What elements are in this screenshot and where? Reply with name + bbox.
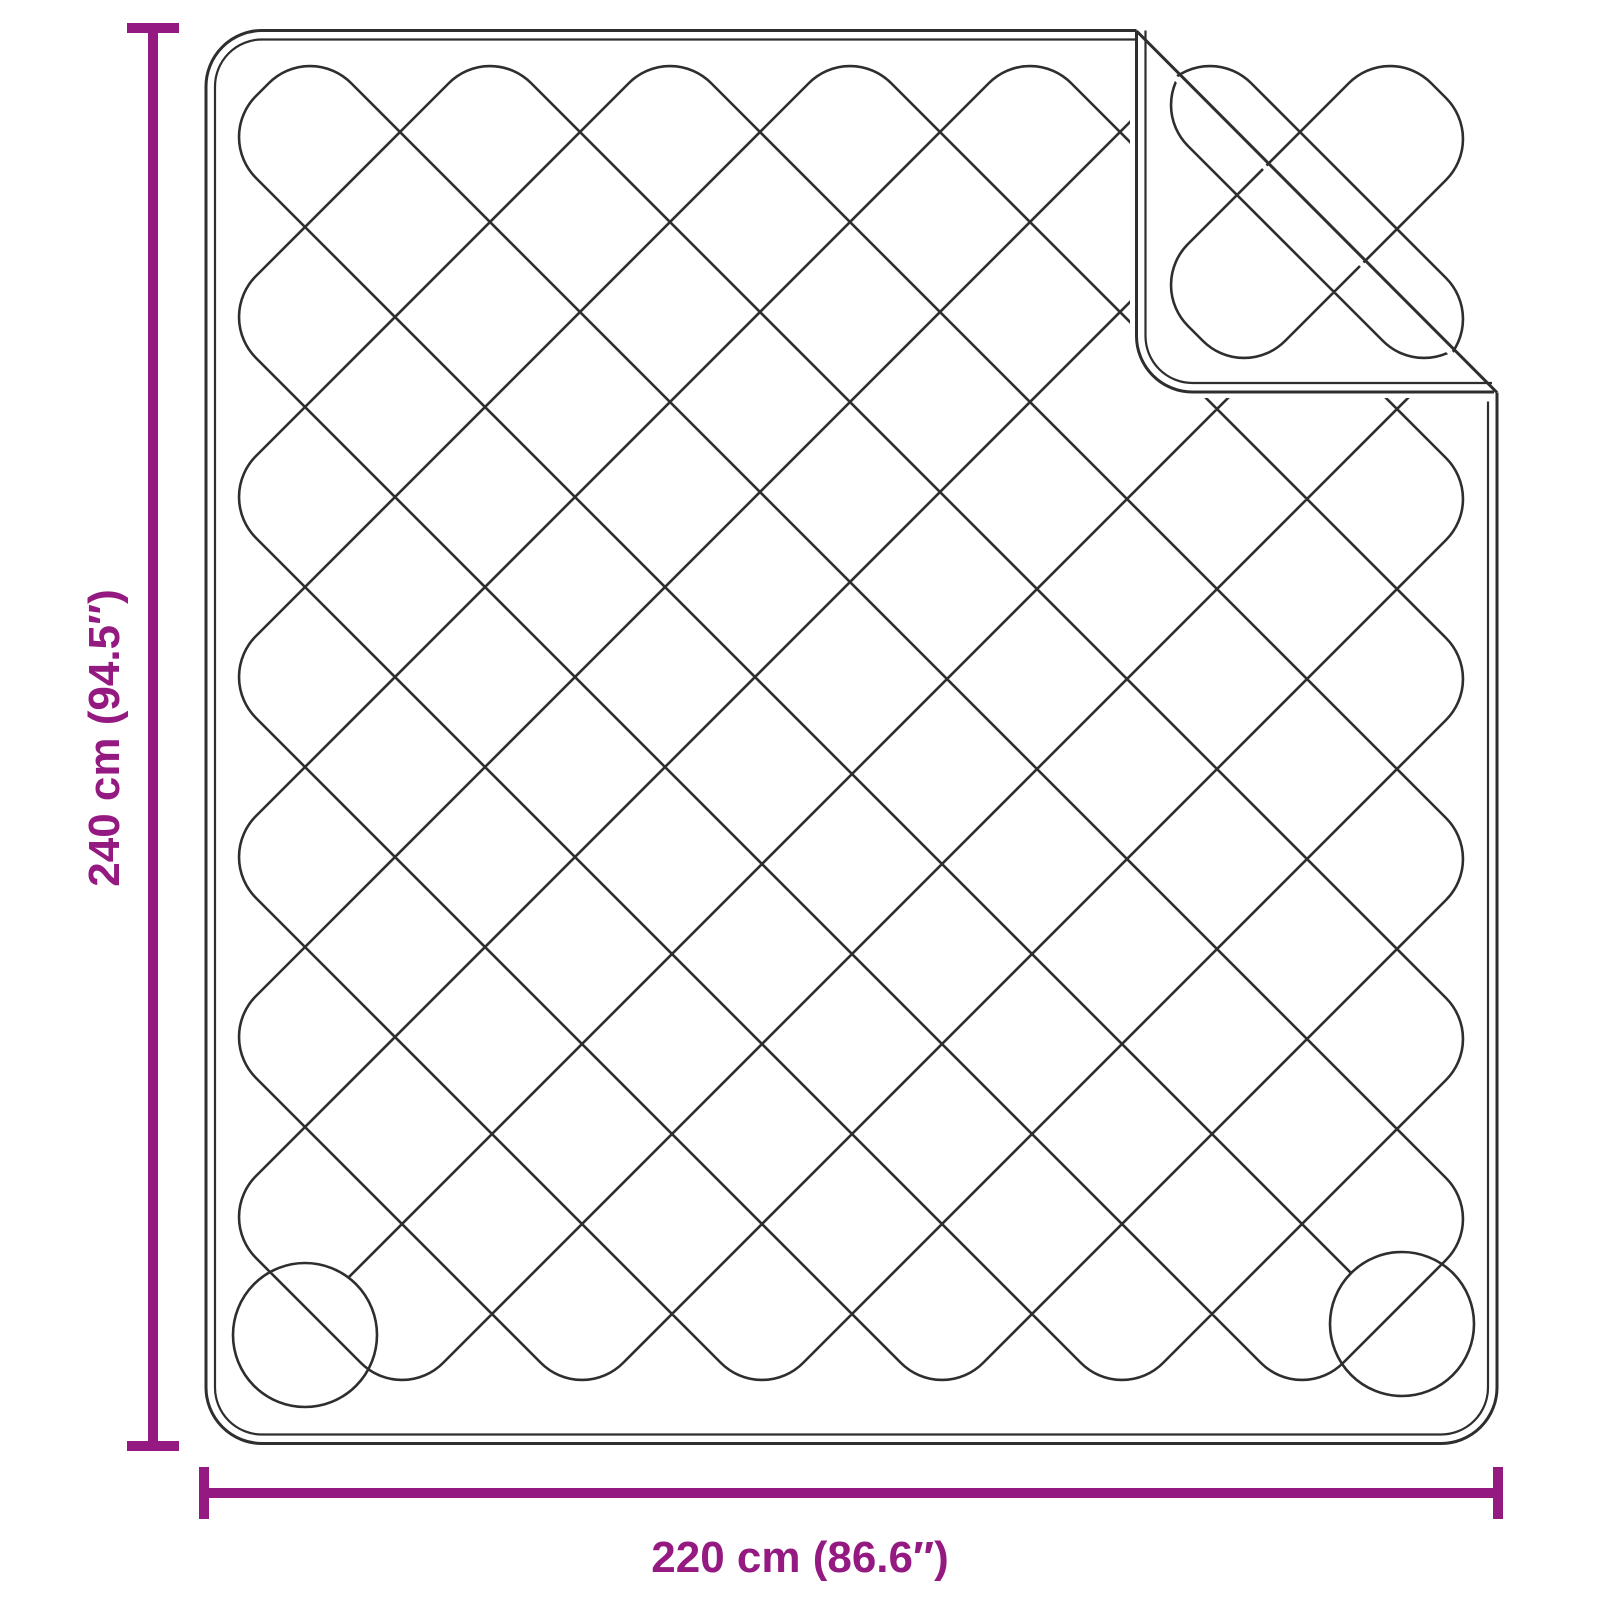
- blanket-outline-outer: [206, 31, 1497, 1444]
- corner-stitch-loop-bottom-left: [233, 1263, 377, 1407]
- quilt-stitch-path: [239, 66, 1463, 1380]
- blanket-border: [206, 31, 1497, 1444]
- blanket-outline-inner: [215, 40, 1488, 1435]
- width-dimension-label: 220 cm (86.6″): [651, 1533, 948, 1582]
- height-dimension-label: 240 cm (94.5″): [80, 589, 129, 886]
- diagram-canvas: 240 cm (94.5″) 220 cm (86.6″): [0, 0, 1600, 1600]
- blanket-dimension-diagram: 240 cm (94.5″) 220 cm (86.6″): [0, 0, 1600, 1600]
- folded-corner-quilting: [1171, 0, 1600, 358]
- folded-corner: [1137, 31, 1498, 393]
- height-dimension: 240 cm (94.5″): [80, 28, 179, 1446]
- fold-crease-line: [1137, 31, 1498, 393]
- fold-flap-outline-inner: [1146, 31, 1493, 384]
- quilting-pattern: [233, 66, 1474, 1407]
- width-dimension: 220 cm (86.6″): [204, 1467, 1498, 1582]
- corner-stitch-loop-bottom-right: [1330, 1252, 1474, 1396]
